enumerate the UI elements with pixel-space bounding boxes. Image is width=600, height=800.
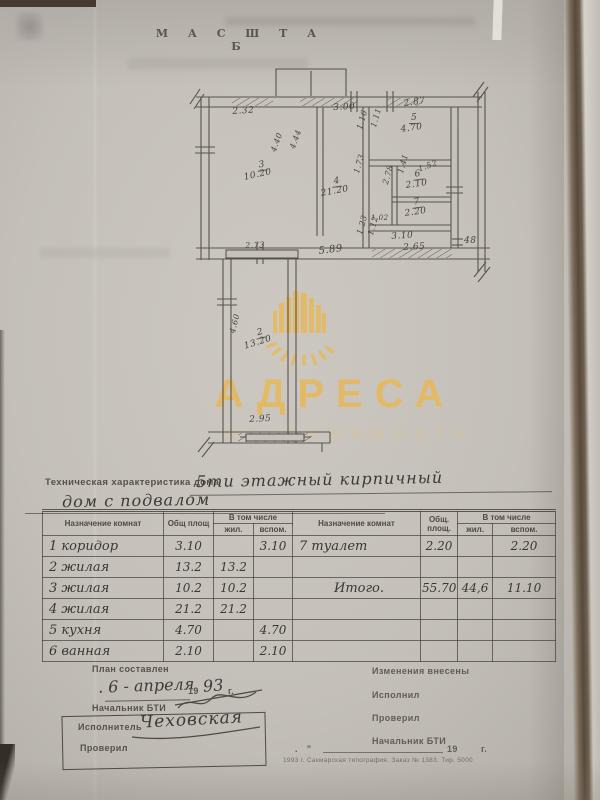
table-cell: 2 жилая bbox=[43, 557, 164, 578]
table-cell: 5 кухня bbox=[43, 620, 164, 641]
plan-dimension-label: 4.44 bbox=[288, 128, 303, 150]
col-header-living: жил. bbox=[214, 524, 254, 536]
tech-characteristics-label: Техническая характеристика дома bbox=[45, 477, 219, 488]
table-cell bbox=[493, 641, 556, 662]
plan-date-handwritten: . 6 - апреля bbox=[98, 674, 195, 696]
table-cell: 4.70 bbox=[254, 620, 293, 641]
plan-dimension-label: 13.20 bbox=[243, 334, 273, 352]
year-handwritten: 93 bbox=[202, 675, 224, 695]
table-cell bbox=[421, 557, 458, 578]
plan-dimension-label: 21.20 bbox=[320, 184, 350, 199]
table-cell: 4.70 bbox=[164, 620, 214, 641]
table-cell: 10.2 bbox=[214, 578, 254, 599]
table-cell: 21.2 bbox=[214, 599, 254, 620]
plan-dimension-label: 2.87 bbox=[403, 96, 426, 109]
table-cell bbox=[493, 599, 556, 620]
table-row: 1 коридор3.103.107 туалет2.202.20 bbox=[43, 536, 556, 557]
table-row: 5 кухня4.704.70 bbox=[43, 620, 556, 641]
table-cell: 6 ванная bbox=[43, 641, 164, 662]
table-cell: 3.10 bbox=[254, 536, 293, 557]
blank-date-line bbox=[323, 752, 443, 753]
plan-dimension-label: 4.40 bbox=[269, 131, 284, 153]
col-header-total2-line2: площ. bbox=[427, 524, 451, 533]
chief2-bti-label: Начальник БТИ bbox=[372, 736, 446, 746]
table-cell: 7 туалет bbox=[293, 536, 421, 557]
col-header-including2: В том числе bbox=[458, 511, 556, 524]
plan-dimension-label: 3.00 bbox=[333, 102, 356, 113]
table-cell bbox=[421, 641, 458, 662]
plan-dimension-label: 48 bbox=[464, 236, 476, 246]
table-cell bbox=[458, 536, 493, 557]
table-cell bbox=[458, 620, 493, 641]
table-cell bbox=[458, 557, 493, 578]
plan-dimension-label: 2.65 bbox=[403, 242, 426, 253]
table-cell: 13.2 bbox=[214, 557, 254, 578]
table-cell bbox=[421, 620, 458, 641]
table-cell: 11.10 bbox=[493, 578, 556, 599]
plan-dimension-label: 3.10 bbox=[391, 230, 414, 242]
year-pre: 19 bbox=[188, 686, 199, 696]
table-cell bbox=[293, 641, 421, 662]
col-header-aux: вспом. bbox=[254, 524, 293, 536]
plan-dimension-label: 1.41 bbox=[396, 153, 410, 175]
done-by-label: Исполнил bbox=[372, 690, 420, 700]
table-cell bbox=[254, 557, 293, 578]
table-cell: 2.10 bbox=[164, 641, 214, 662]
table-cell bbox=[214, 620, 254, 641]
underline bbox=[190, 491, 552, 496]
table-cell bbox=[293, 557, 421, 578]
table-cell bbox=[493, 620, 556, 641]
table-cell: 21.2 bbox=[164, 599, 214, 620]
table-cell bbox=[293, 620, 421, 641]
table-cell: 2.20 bbox=[493, 536, 556, 557]
table-cell: 2.20 bbox=[421, 536, 458, 557]
table-cell bbox=[293, 599, 421, 620]
blank-year-suffix: г. bbox=[481, 744, 487, 754]
plan-labels-layer: 2.323.002.8754.701.161.114.404.44310.204… bbox=[0, 0, 600, 470]
plan-dimension-label: 1.52 bbox=[417, 158, 439, 173]
plan-dimension-label: 2.10 bbox=[405, 178, 428, 191]
plan-dimension-label: 2.20 bbox=[404, 206, 427, 219]
paper-shading-bottom bbox=[0, 760, 600, 800]
plan-dimension-label: 10.20 bbox=[243, 167, 273, 183]
plan-dimension-label: 2.73 bbox=[245, 240, 265, 250]
table-cell bbox=[214, 641, 254, 662]
table-cell: 13.2 bbox=[164, 557, 214, 578]
characteristics-table: Назначение комнат Общ площ В том числе Н… bbox=[42, 509, 556, 662]
table-cell bbox=[421, 599, 458, 620]
table-cell bbox=[458, 599, 493, 620]
table-row: 3 жилая10.210.2Итого.55.7044,611.10 bbox=[43, 578, 556, 599]
table-cell: 44,6 bbox=[458, 578, 493, 599]
tech-value-line1: 5ти этажный кирпичный bbox=[196, 468, 443, 491]
col-header-purpose: Назначение комнат bbox=[43, 511, 164, 536]
table-cell: 4 жилая bbox=[43, 599, 164, 620]
table-row: 6 ванная2.102.10 bbox=[43, 641, 556, 662]
col-header-aux2: вспом. bbox=[493, 524, 556, 536]
plan-dimension-label: 4.60 bbox=[228, 313, 242, 334]
table-cell: 55.70 bbox=[421, 578, 458, 599]
plan-dimension-label: 2.95 bbox=[249, 414, 272, 425]
plan-dimension-label: 4.70 bbox=[400, 122, 423, 135]
table-cell: 2.10 bbox=[254, 641, 293, 662]
table-cell bbox=[254, 578, 293, 599]
col-header-purpose2: Назначение комнат bbox=[293, 511, 421, 536]
checked2-label: Проверил bbox=[372, 713, 420, 723]
col-header-total: Общ площ bbox=[164, 511, 214, 536]
underline bbox=[105, 699, 190, 701]
table-cell: Итого. bbox=[293, 578, 421, 599]
table-cell bbox=[254, 599, 293, 620]
plan-dimension-label: 1.16 bbox=[355, 109, 369, 131]
col-header-including: В том числе bbox=[214, 511, 293, 524]
table-cell: 3 жилая bbox=[43, 578, 164, 599]
year-suffix: г. bbox=[228, 686, 234, 696]
plan-made-label: План составлен bbox=[92, 664, 169, 674]
plan-dimension-label: 5.89 bbox=[318, 243, 343, 257]
changes-made-label: Изменения внесены bbox=[372, 666, 469, 676]
plan-dimension-label: 2.32 bbox=[232, 105, 255, 117]
col-header-total2: Общ. площ. bbox=[421, 511, 458, 536]
table-row: 4 жилая21.221.2 bbox=[43, 599, 556, 620]
quote-mark: . ” bbox=[295, 744, 312, 754]
plan-dimension-label: 2.78 bbox=[381, 164, 395, 186]
col-header-living2: жил. bbox=[458, 524, 493, 536]
blank-year: 19 bbox=[447, 744, 458, 754]
table-cell: 10.2 bbox=[164, 578, 214, 599]
table-cell: 3.10 bbox=[164, 536, 214, 557]
plan-dimension-label: 1.73 bbox=[352, 153, 366, 175]
scanned-document-photo: М А С Ш Т А Б bbox=[0, 0, 600, 800]
table-row: 2 жилая13.213.2 bbox=[43, 557, 556, 578]
table-cell bbox=[214, 536, 254, 557]
table-cell bbox=[493, 557, 556, 578]
col-header-total2-line1: Общ. bbox=[429, 515, 449, 524]
table-cell: 1 коридор bbox=[43, 536, 164, 557]
plan-dimension-label: 1.11 bbox=[369, 107, 383, 129]
table-cell bbox=[458, 641, 493, 662]
table-header-row: Назначение комнат Общ площ В том числе Н… bbox=[43, 511, 556, 524]
